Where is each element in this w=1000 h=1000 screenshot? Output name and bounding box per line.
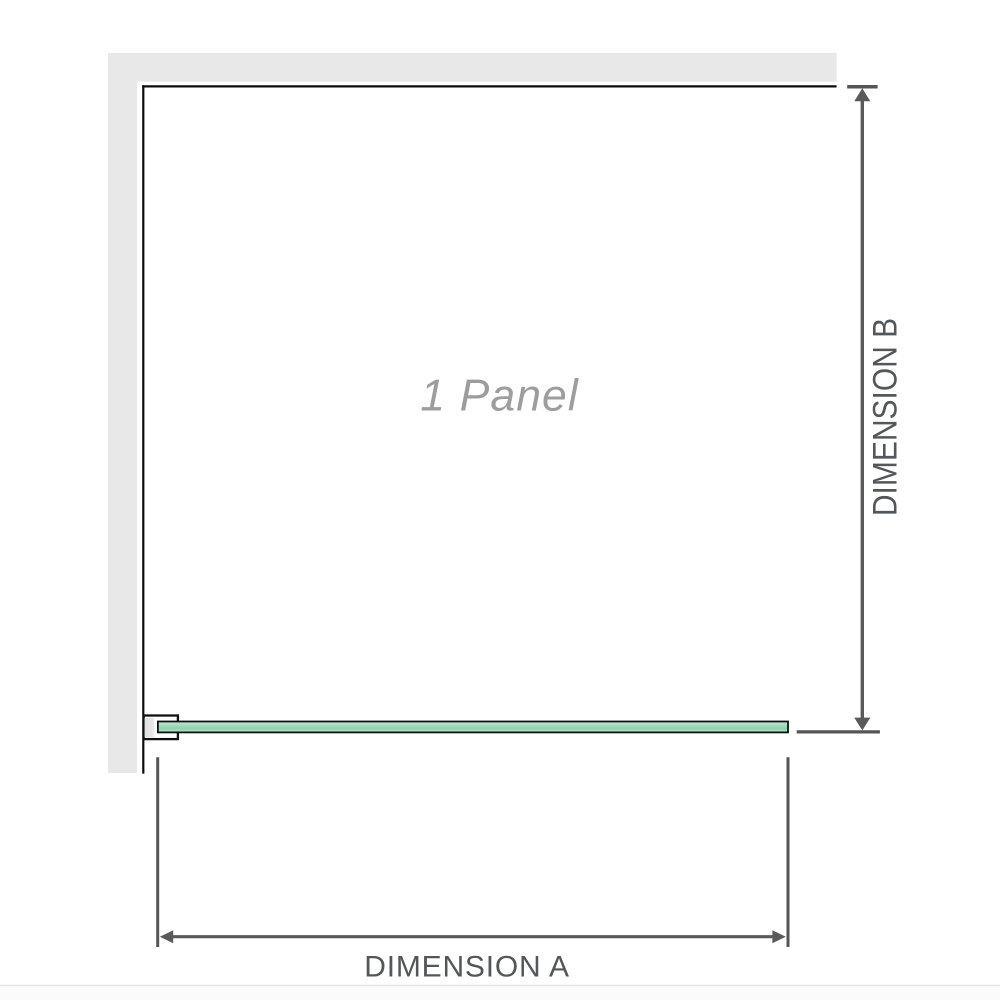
- svg-text:DIMENSION A: DIMENSION A: [364, 950, 570, 983]
- svg-text:DIMENSION B: DIMENSION B: [866, 318, 904, 516]
- svg-text:1 Panel: 1 Panel: [420, 371, 579, 420]
